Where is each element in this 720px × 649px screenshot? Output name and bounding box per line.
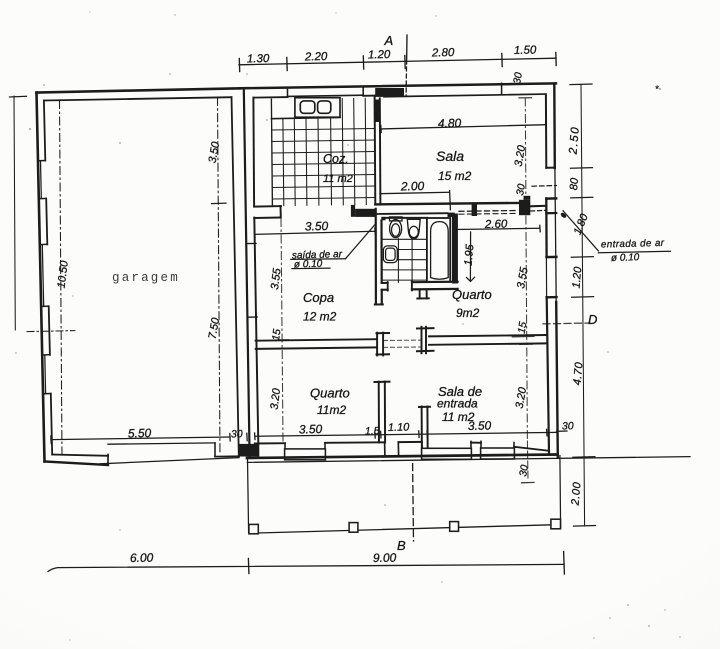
- svg-text:1.5: 1.5: [365, 425, 380, 437]
- svg-text:Sala: Sala: [436, 148, 464, 164]
- svg-text:7.50: 7.50: [207, 316, 223, 340]
- svg-text:9m2: 9m2: [456, 306, 480, 320]
- svg-text:11 m2: 11 m2: [323, 173, 353, 185]
- svg-text:4.80: 4.80: [438, 116, 462, 131]
- svg-text:2.20: 2.20: [304, 51, 328, 64]
- svg-text:30: 30: [562, 420, 574, 432]
- svg-text:1.10: 1.10: [388, 421, 411, 434]
- svg-text:4.70: 4.70: [572, 361, 586, 386]
- svg-text:15: 15: [516, 321, 530, 335]
- svg-text:entrada de ar: entrada de ar: [601, 238, 665, 251]
- svg-text:Quarto: Quarto: [452, 287, 492, 302]
- svg-text:15 m2: 15 m2: [438, 169, 472, 183]
- svg-text:2.60: 2.60: [484, 218, 508, 231]
- svg-text:1.50: 1.50: [514, 44, 537, 57]
- svg-text:6.00: 6.00: [130, 551, 154, 565]
- svg-text:1.80: 1.80: [572, 211, 591, 236]
- svg-text:3.55: 3.55: [515, 265, 531, 289]
- svg-text:Copa: Copa: [303, 290, 334, 305]
- svg-text:1.20: 1.20: [571, 266, 585, 289]
- svg-text:30: 30: [514, 183, 528, 197]
- svg-text:3.50: 3.50: [299, 422, 323, 437]
- svg-text:ø 0.10: ø 0.10: [611, 252, 640, 264]
- svg-text:2.50: 2.50: [567, 125, 582, 155]
- svg-text:1.95: 1.95: [463, 243, 477, 266]
- svg-text:1.30: 1.30: [247, 53, 270, 66]
- svg-text:30: 30: [517, 464, 531, 478]
- svg-text:3.50: 3.50: [305, 219, 329, 234]
- svg-text:12 m2: 12 m2: [303, 310, 337, 324]
- svg-text:80: 80: [568, 177, 581, 191]
- svg-text:1.20: 1.20: [368, 49, 391, 62]
- svg-text:2.00: 2.00: [569, 481, 583, 507]
- svg-text:Coz.: Coz.: [323, 152, 349, 166]
- svg-text:B: B: [397, 538, 406, 553]
- svg-text:3.20: 3.20: [269, 387, 284, 411]
- svg-text:30: 30: [231, 428, 243, 440]
- svg-text:A: A: [384, 33, 394, 48]
- svg-text:2.80: 2.80: [431, 47, 455, 60]
- svg-text:5.50: 5.50: [128, 426, 152, 441]
- svg-text:Quarto: Quarto: [310, 386, 350, 401]
- svg-text:10.50: 10.50: [56, 259, 71, 289]
- svg-text:*: *: [655, 84, 659, 94]
- svg-text:15: 15: [270, 328, 283, 341]
- svg-text:11m2: 11m2: [317, 403, 346, 417]
- svg-text:9.00: 9.00: [373, 551, 397, 565]
- svg-text:2.00: 2.00: [400, 179, 425, 194]
- svg-text:garagem: garagem: [112, 271, 180, 285]
- svg-text:entrada: entrada: [437, 397, 478, 411]
- svg-text:3.50: 3.50: [207, 140, 223, 164]
- svg-text:ø 0.10: ø 0.10: [294, 259, 323, 271]
- svg-text:30: 30: [511, 71, 525, 85]
- svg-text:3.50: 3.50: [468, 418, 492, 433]
- svg-text:D: D: [588, 312, 597, 327]
